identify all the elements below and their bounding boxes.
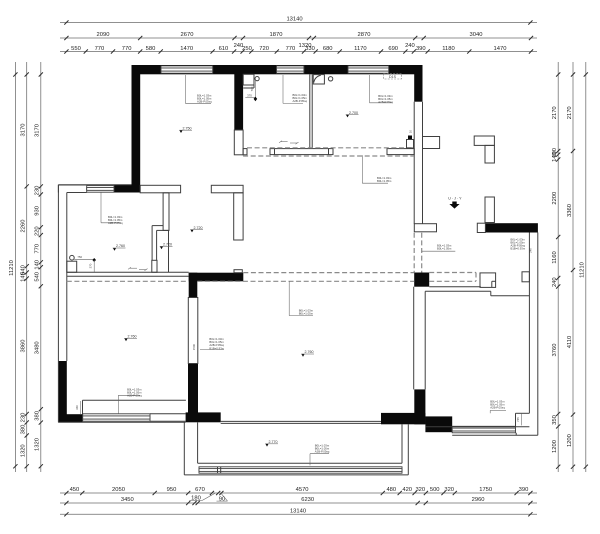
svg-text:B0L=1.05m: B0L=1.05m <box>299 311 314 315</box>
svg-text:750: 750 <box>77 255 82 259</box>
svg-text:2.760: 2.760 <box>116 244 125 248</box>
svg-text:380: 380 <box>21 425 27 435</box>
svg-text:2.700: 2.700 <box>349 111 358 115</box>
svg-text:140: 140 <box>552 152 558 162</box>
svg-text:U·J·Y: U·J·Y <box>448 197 462 201</box>
svg-text:6230: 6230 <box>301 497 314 503</box>
svg-text:2170: 2170 <box>567 106 573 119</box>
svg-text:B1B=0.93m: B1B=0.93m <box>209 346 224 350</box>
svg-text:A2B-P.05sq: A2B-P.05sq <box>127 394 142 398</box>
svg-text:3170: 3170 <box>35 124 41 137</box>
svg-text:B0L=1.05m: B0L=1.05m <box>377 179 392 183</box>
svg-text:B0L=1.05m: B0L=1.05m <box>437 247 452 251</box>
svg-text:3360: 3360 <box>567 204 573 217</box>
svg-text:2.760: 2.760 <box>305 350 314 354</box>
svg-text:1320: 1320 <box>299 43 312 49</box>
svg-text:13140: 13140 <box>290 509 306 515</box>
svg-text:4570: 4570 <box>296 487 309 493</box>
svg-text:3860: 3860 <box>21 340 27 353</box>
svg-text:610: 610 <box>219 46 229 52</box>
svg-text:240: 240 <box>234 43 244 49</box>
svg-text:250: 250 <box>242 46 252 52</box>
svg-text:540: 540 <box>35 272 41 282</box>
svg-text:450: 450 <box>70 487 80 493</box>
svg-text:2.770: 2.770 <box>269 440 278 444</box>
svg-text:A2B-P.05sq: A2B-P.05sq <box>315 450 330 454</box>
svg-text:3450: 3450 <box>121 497 134 503</box>
svg-text:2.760: 2.760 <box>128 335 137 339</box>
svg-text:390: 390 <box>519 487 529 493</box>
svg-text:3760: 3760 <box>552 344 558 357</box>
svg-text:770: 770 <box>35 244 41 254</box>
svg-text:1170: 1170 <box>354 46 366 52</box>
svg-text:1750: 1750 <box>479 487 492 493</box>
svg-text:770: 770 <box>286 46 296 52</box>
svg-text:2200: 2200 <box>552 192 558 205</box>
svg-text:690: 690 <box>388 46 398 52</box>
svg-text:230: 230 <box>21 413 27 423</box>
svg-text:240: 240 <box>552 277 558 287</box>
svg-text:230: 230 <box>35 186 41 196</box>
svg-text:2090: 2090 <box>97 32 110 38</box>
svg-text:370: 370 <box>89 263 93 268</box>
svg-text:580: 580 <box>146 46 156 52</box>
svg-text:10: 10 <box>409 130 413 134</box>
svg-text:2260: 2260 <box>21 220 27 233</box>
svg-text:480: 480 <box>386 487 396 493</box>
svg-text:1200: 1200 <box>567 434 573 447</box>
svg-text:950: 950 <box>167 487 177 493</box>
svg-text:140: 140 <box>35 260 41 270</box>
svg-text:A2B-P.05sq: A2B-P.05sq <box>293 99 308 103</box>
svg-text:240: 240 <box>405 43 415 49</box>
svg-text:1470: 1470 <box>494 46 507 52</box>
svg-text:1500: 1500 <box>192 343 196 350</box>
svg-text:700: 700 <box>250 86 254 91</box>
svg-text:320: 320 <box>444 487 454 493</box>
svg-text:2960: 2960 <box>472 497 485 503</box>
svg-text:3480: 3480 <box>35 341 41 354</box>
svg-text:500: 500 <box>430 487 440 493</box>
svg-text:1320: 1320 <box>35 438 41 451</box>
svg-text:420: 420 <box>402 487 412 493</box>
svg-text:13140: 13140 <box>286 17 302 23</box>
svg-text:1870: 1870 <box>270 32 283 38</box>
svg-text:1470: 1470 <box>180 46 193 52</box>
svg-text:2670: 2670 <box>181 32 194 38</box>
svg-text:380: 380 <box>35 411 41 421</box>
svg-text:720: 720 <box>259 46 269 52</box>
svg-text:360: 360 <box>75 405 79 410</box>
svg-text:3040: 3040 <box>470 32 483 38</box>
svg-text:2050: 2050 <box>112 487 125 493</box>
svg-text:4110: 4110 <box>567 336 573 348</box>
svg-text:220: 220 <box>35 226 41 236</box>
svg-text:11210: 11210 <box>580 262 586 278</box>
svg-text:670: 670 <box>195 487 205 493</box>
svg-text:1180: 1180 <box>442 46 454 52</box>
svg-text:930: 930 <box>35 206 41 216</box>
svg-text:350: 350 <box>552 415 558 425</box>
svg-text:B1B=0.93m: B1B=0.93m <box>511 247 526 251</box>
svg-text:2170: 2170 <box>552 106 558 119</box>
svg-text:1160: 1160 <box>552 251 558 263</box>
svg-text:140: 140 <box>21 272 27 282</box>
svg-text:2870: 2870 <box>358 32 371 38</box>
svg-text:2.720: 2.720 <box>194 226 203 230</box>
svg-text:A2B-P.05sq: A2B-P.05sq <box>197 100 212 104</box>
svg-text:680: 680 <box>323 46 333 52</box>
svg-text:3170: 3170 <box>21 124 27 137</box>
svg-text:A2B-P.05sq: A2B-P.05sq <box>108 221 123 225</box>
svg-text:11210: 11210 <box>9 260 15 276</box>
svg-text:770: 770 <box>122 46 132 52</box>
svg-text:A2B-P.05sq: A2B-P.05sq <box>378 100 393 104</box>
svg-text:770: 770 <box>95 46 105 52</box>
svg-text:370: 370 <box>247 94 252 98</box>
svg-text:320: 320 <box>415 487 425 493</box>
svg-text:A2B-P.05sq: A2B-P.05sq <box>490 406 505 410</box>
svg-text:745: 745 <box>516 417 520 422</box>
svg-text:D1S: D1S <box>389 75 397 79</box>
svg-text:1320: 1320 <box>21 444 27 457</box>
svg-text:390: 390 <box>416 46 426 52</box>
svg-text:1200: 1200 <box>552 440 558 453</box>
svg-text:240: 240 <box>529 248 533 253</box>
svg-text:2.750: 2.750 <box>183 126 192 130</box>
svg-text:2.720: 2.720 <box>163 243 172 247</box>
svg-text:550: 550 <box>71 46 81 52</box>
